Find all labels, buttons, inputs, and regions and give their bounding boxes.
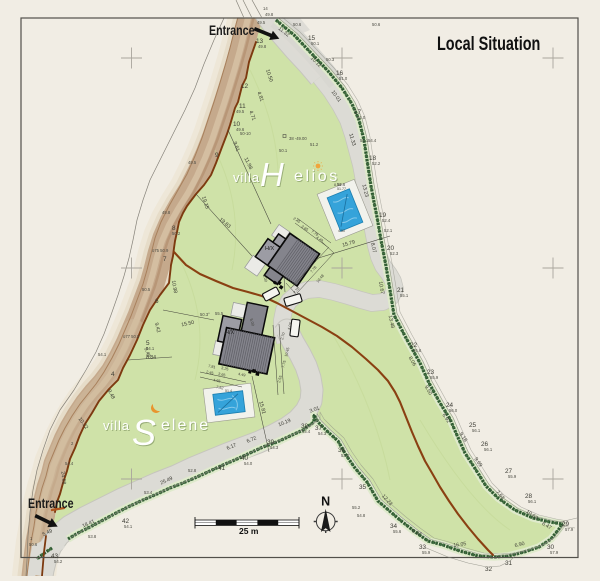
svg-text:4.50: 4.50	[338, 229, 345, 233]
svg-text:o75 50.9: o75 50.9	[152, 248, 169, 253]
svg-text:50.6: 50.6	[372, 22, 381, 27]
svg-text:o77 50.8: o77 50.8	[123, 334, 140, 339]
svg-text:54.0: 54.0	[244, 461, 253, 466]
svg-text:54.4: 54.4	[65, 461, 74, 466]
svg-text:8.84: 8.84	[146, 355, 156, 361]
svg-text:54.3: 54.3	[270, 445, 279, 450]
svg-text:53.8: 53.8	[88, 534, 97, 539]
svg-text:50.6: 50.6	[29, 542, 38, 547]
svg-text:41: 41	[218, 465, 226, 472]
svg-text:52.1: 52.1	[384, 228, 393, 233]
svg-text:55.9: 55.9	[508, 474, 517, 479]
svg-text:villa: villa	[233, 170, 260, 185]
svg-text:50.1: 50.1	[311, 41, 320, 46]
svg-text:35: 35	[359, 484, 367, 491]
svg-text:Local Situation: Local Situation	[437, 32, 540, 55]
svg-text:52.2: 52.2	[372, 161, 381, 166]
svg-text:53.6: 53.6	[341, 453, 350, 458]
svg-text:H/X: H/X	[225, 330, 235, 336]
svg-text:55.1: 55.1	[400, 293, 409, 298]
svg-text:55.9: 55.9	[430, 375, 439, 380]
svg-text:55.6: 55.6	[393, 529, 402, 534]
svg-text:12: 12	[241, 83, 249, 90]
svg-text:55.9: 55.9	[422, 550, 431, 555]
svg-text:50.6: 50.6	[293, 22, 302, 27]
svg-text:H: H	[260, 156, 284, 193]
svg-text:55.6: 55.6	[413, 348, 422, 353]
svg-text:54.1: 54.1	[124, 524, 133, 529]
svg-text:52.4: 52.4	[382, 218, 391, 223]
svg-text:50.1: 50.1	[279, 148, 288, 153]
svg-text:51.0: 51.0	[339, 76, 348, 81]
svg-text:50.3°: 50.3°	[200, 312, 210, 317]
svg-text:S: S	[132, 412, 156, 453]
svg-text:49.8: 49.8	[265, 12, 274, 17]
svg-text:56.1: 56.1	[472, 428, 481, 433]
svg-text:50-10: 50-10	[240, 131, 251, 136]
svg-text:N: N	[321, 495, 330, 509]
svg-text:50.5: 50.5	[142, 287, 151, 292]
svg-text:49.5: 49.5	[188, 160, 197, 165]
svg-text:54.2: 54.2	[54, 559, 63, 564]
svg-text:54.4: 54.4	[368, 138, 377, 143]
svg-text:55.5: 55.5	[215, 311, 224, 316]
svg-text:53.4: 53.4	[144, 490, 153, 495]
svg-text:49.5: 49.5	[236, 109, 245, 114]
svg-text:49.8: 49.8	[162, 210, 171, 215]
svg-text:50.3: 50.3	[326, 57, 335, 62]
svg-text:25 m: 25 m	[239, 526, 259, 536]
svg-text:54.3: 54.3	[318, 431, 327, 436]
svg-text:56.1: 56.1	[528, 499, 537, 504]
svg-text:57.9: 57.9	[550, 550, 559, 555]
svg-text:H/X: H/X	[265, 246, 275, 252]
svg-text:4: 4	[111, 371, 115, 378]
svg-text:49.8: 49.8	[258, 44, 267, 49]
svg-text:7: 7	[163, 256, 167, 263]
svg-text:31: 31	[505, 560, 513, 567]
svg-text:51.0: 51.0	[357, 115, 366, 120]
svg-text:50.2: 50.2	[172, 231, 181, 236]
svg-text:51.4: 51.4	[225, 389, 232, 393]
svg-text:elene: elene	[161, 417, 210, 434]
svg-text:Entrance: Entrance	[28, 496, 74, 512]
svg-text:54.4: 54.4	[302, 429, 311, 434]
svg-text:38 -49.00: 38 -49.00	[289, 136, 307, 141]
svg-text:51.77: 51.77	[337, 187, 346, 191]
svg-text:Entrance: Entrance	[209, 23, 255, 39]
svg-text:55.2: 55.2	[352, 505, 361, 510]
svg-text:9: 9	[215, 152, 219, 159]
svg-text:6: 6	[155, 298, 159, 305]
svg-text:54.1: 54.1	[98, 352, 107, 357]
svg-text:56.0: 56.0	[449, 408, 458, 413]
svg-text:51.2: 51.2	[310, 142, 319, 147]
svg-text:54.8: 54.8	[357, 513, 366, 518]
svg-text:villa: villa	[103, 418, 130, 433]
svg-text:52.8: 52.8	[188, 468, 197, 473]
svg-text:52.3: 52.3	[390, 251, 399, 256]
svg-text:56.1: 56.1	[484, 447, 493, 452]
svg-text:49.5: 49.5	[257, 20, 266, 25]
svg-text:14: 14	[263, 6, 268, 11]
